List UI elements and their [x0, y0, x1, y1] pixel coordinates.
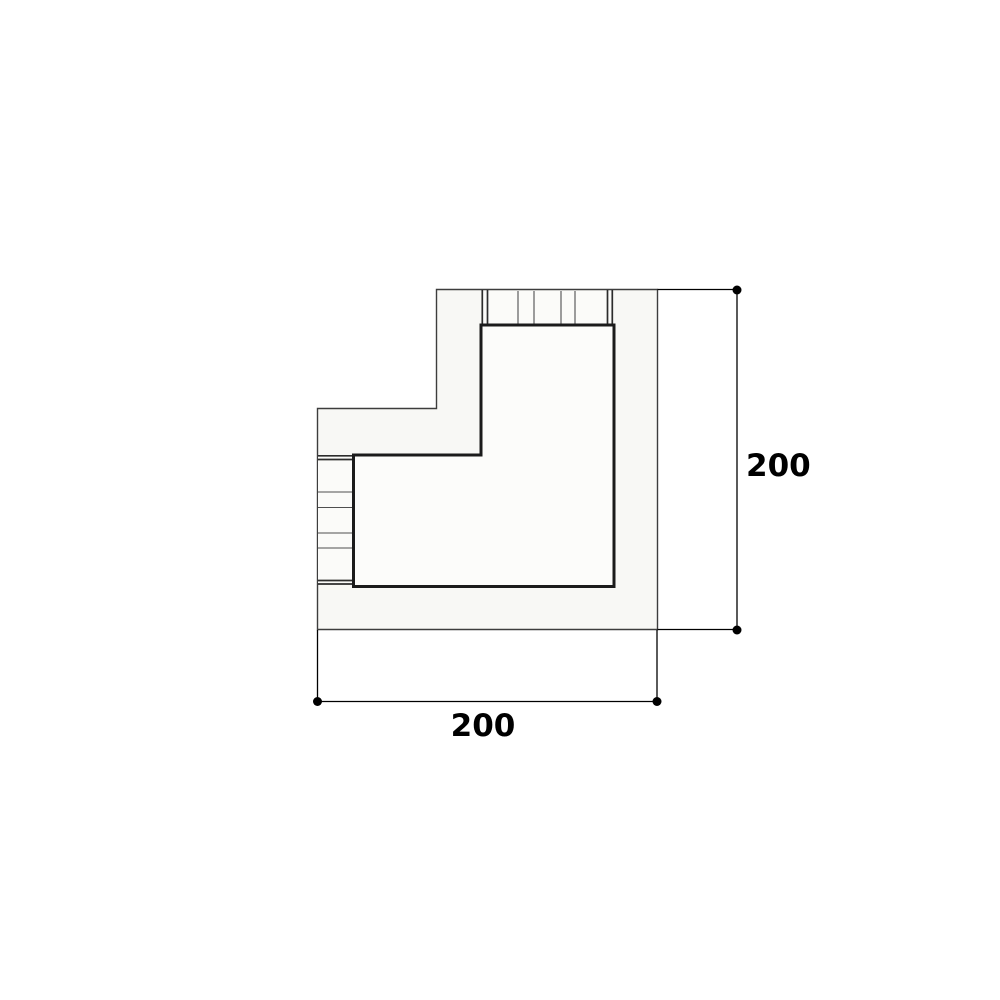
vertical-dimension: 200 — [658, 286, 811, 635]
dimension-endpoint-dot — [733, 626, 742, 635]
left-backrest-slats — [318, 456, 353, 585]
vertical-dimension-label: 200 — [746, 448, 811, 484]
plan-drawing-page: 200 200 — [0, 0, 1000, 1000]
plan-drawing-canvas: 200 200 — [0, 0, 1000, 1000]
seat-outline — [354, 325, 615, 587]
left-backrest-panel — [318, 456, 352, 585]
corner-module — [318, 290, 658, 630]
dimension-endpoint-dot — [733, 286, 742, 295]
top-backrest-slats — [482, 290, 613, 325]
dimension-endpoint-dot — [653, 697, 662, 706]
horizontal-dimension-label: 200 — [451, 708, 516, 744]
top-backrest-panel — [482, 291, 613, 325]
dimension-endpoint-dot — [313, 697, 322, 706]
horizontal-dimension: 200 — [313, 630, 662, 744]
